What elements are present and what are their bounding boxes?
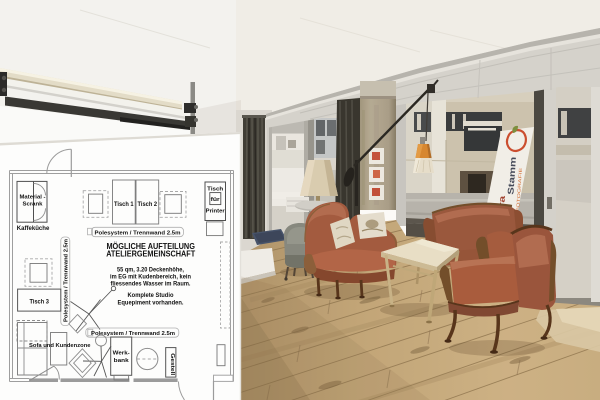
svg-text:55 qm, 3.20 Deckenhöhe,: 55 qm, 3.20 Deckenhöhe, — [117, 266, 184, 273]
svg-text:Scrank: Scrank — [23, 202, 44, 208]
svg-text:Tisch 2: Tisch 2 — [138, 202, 158, 208]
svg-text:Gestell: Gestell — [169, 353, 175, 376]
svg-text:Komplete Studio: Komplete Studio — [128, 292, 174, 299]
svg-text:Equepiment vorhanden.: Equepiment vorhanden. — [118, 300, 184, 307]
svg-text:fliessendes Wasser im Raum.: fliessendes Wasser im Raum. — [111, 281, 191, 288]
svg-text:Tisch 1: Tisch 1 — [114, 202, 134, 208]
svg-text:Tisch 3: Tisch 3 — [29, 300, 49, 306]
svg-text:Printer: Printer — [206, 208, 226, 214]
svg-text:ATELIERGEMEINSCHAFT: ATELIERGEMEINSCHAFT — [106, 250, 195, 259]
svg-text:im EG mit Kudenbereich, kein: im EG mit Kudenbereich, kein — [110, 274, 191, 281]
svg-text:Polesystem / Trennwand 2.5m: Polesystem / Trennwand 2.5m — [95, 230, 181, 236]
svg-text:Kaffeküche: Kaffeküche — [17, 225, 50, 232]
svg-text:Tisch: Tisch — [207, 187, 223, 193]
svg-text:bank: bank — [114, 358, 130, 364]
svg-text:Sofa und Kundenzone: Sofa und Kundenzone — [29, 343, 91, 349]
svg-text:Werk-: Werk- — [113, 351, 130, 357]
svg-text:Material -: Material - — [20, 195, 46, 201]
svg-text:Polesystem / Trennwand 2.5m: Polesystem / Trennwand 2.5m — [64, 239, 70, 322]
svg-text:für: für — [211, 197, 221, 203]
